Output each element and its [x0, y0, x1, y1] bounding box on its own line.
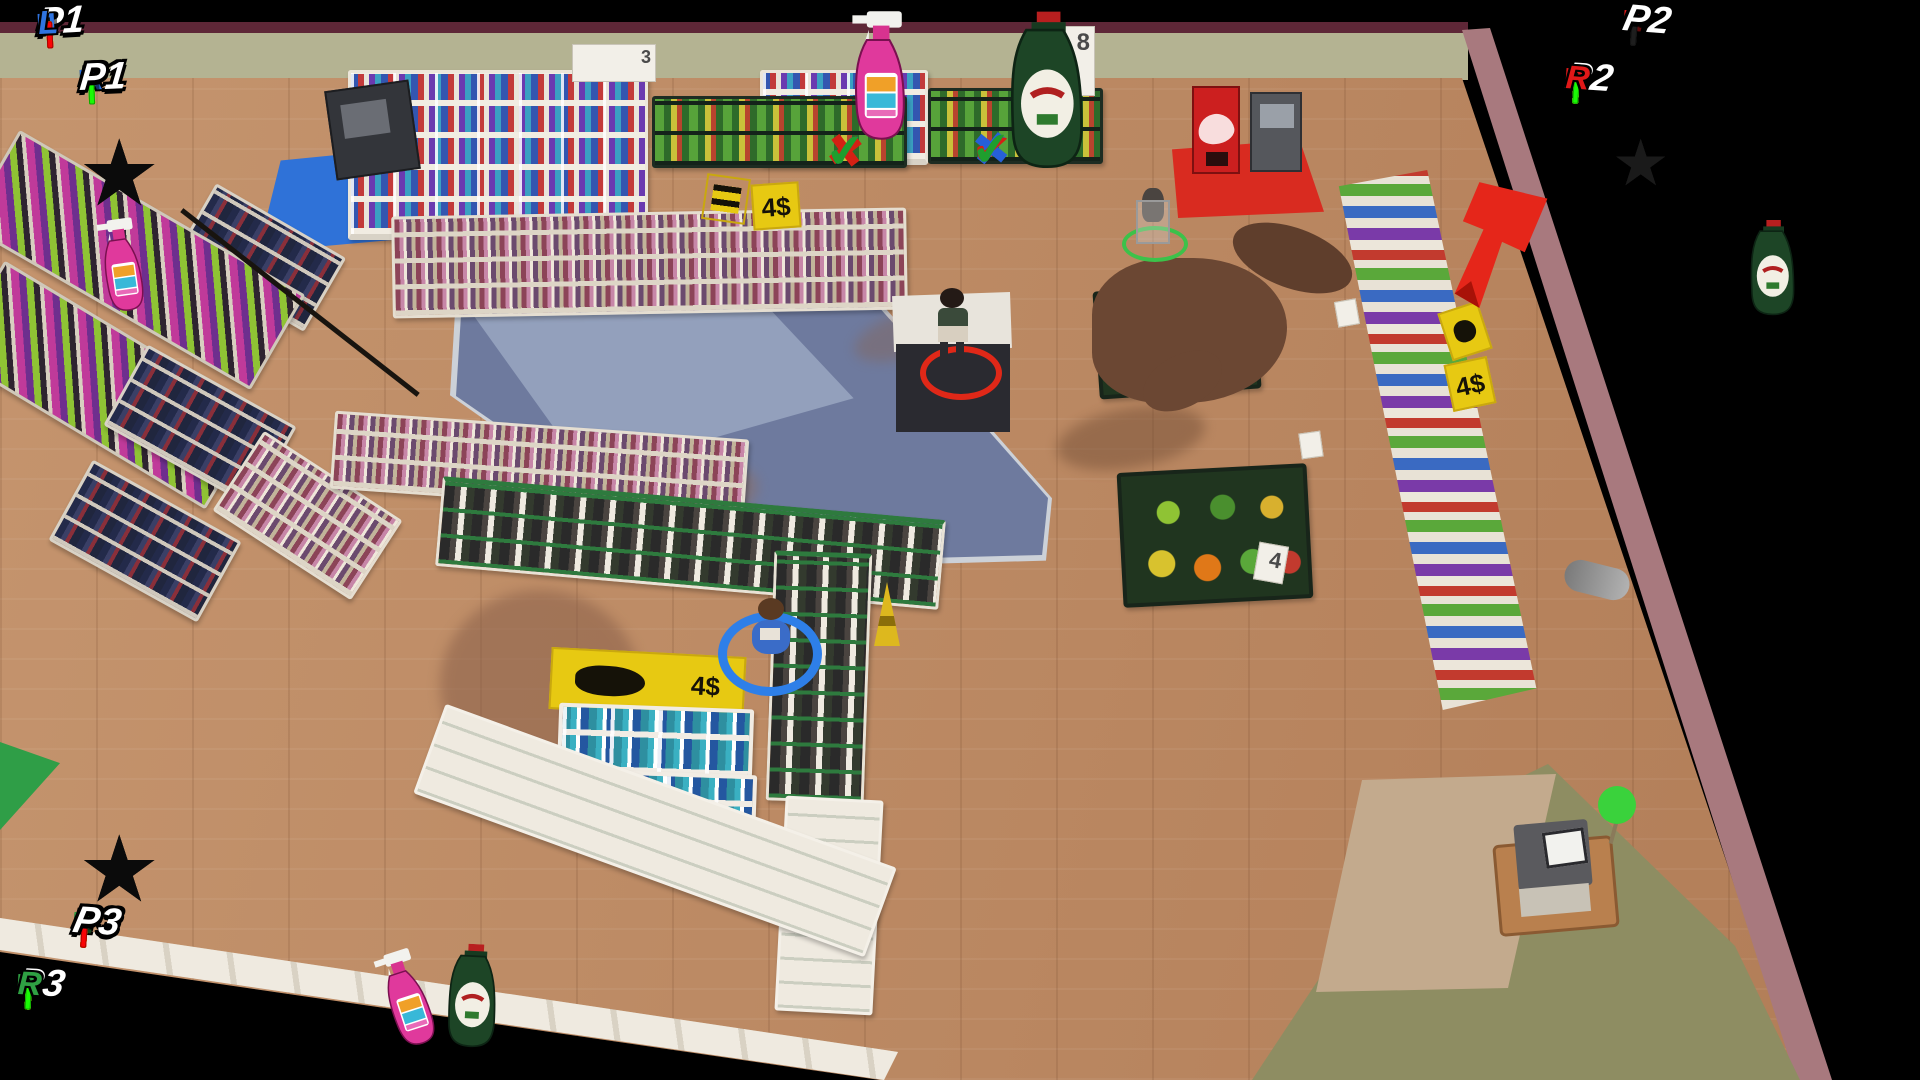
character-center[interactable]	[930, 288, 976, 366]
cola-vending-machine[interactable]	[1192, 86, 1240, 174]
star-icon: ★	[1612, 128, 1683, 200]
p1-label: P1	[78, 57, 128, 97]
kiosk-panel	[340, 99, 390, 139]
promo-logo-blob	[1451, 317, 1479, 345]
character-p1[interactable]	[744, 598, 796, 668]
p2-label: P2	[1620, 0, 1675, 40]
star-icon: ★	[78, 122, 150, 226]
check-icon: ✔	[824, 126, 867, 176]
bottle-aisle-shelf	[391, 208, 908, 319]
character-hair	[758, 598, 784, 620]
vending-slot	[1206, 152, 1228, 166]
price-sign: 3	[572, 44, 656, 82]
promo-sign: 4$	[750, 181, 801, 230]
check-icon: ✔	[970, 124, 1013, 174]
atm-machine[interactable]	[1250, 92, 1302, 172]
pallet-banner-price: 4$	[690, 671, 720, 701]
objective-green-detergent-bottle	[1000, 8, 1092, 173]
store-top-wall	[0, 22, 1468, 80]
shopping-cart[interactable]	[1136, 200, 1170, 244]
price-tag	[1334, 298, 1360, 327]
kiosk-machine[interactable]	[324, 80, 421, 181]
p3-label: P3	[70, 901, 124, 942]
green-balloon	[1598, 786, 1636, 824]
character-leg	[940, 342, 948, 360]
p1-left-bar-letter: L	[37, 4, 59, 38]
green-detergent-bottle-pickup[interactable]	[433, 942, 510, 1050]
wet-floor-sign-band	[878, 616, 896, 626]
register-screen	[1542, 827, 1589, 868]
price-tag	[1298, 431, 1323, 460]
character-hair	[940, 288, 964, 308]
pallet-banner-logo	[574, 664, 645, 698]
target-arrow-icon	[1448, 178, 1552, 312]
p2-right-bar-letter: R	[1565, 60, 1591, 95]
cola-logo	[1195, 111, 1236, 148]
character-shirt	[760, 628, 780, 640]
character-apron	[938, 326, 968, 342]
promo-sign-stripes	[701, 173, 751, 225]
atm-screen	[1260, 104, 1294, 128]
p2-target-item-icon	[1744, 218, 1800, 318]
produce-bin	[1117, 463, 1314, 608]
p3-right-bar-letter: R	[17, 966, 43, 1000]
game-screen: 4$ 3 8 -12 4$ 4$ 4	[0, 0, 1920, 1080]
character-leg	[956, 342, 964, 360]
price-sign-value: 3	[641, 47, 651, 67]
